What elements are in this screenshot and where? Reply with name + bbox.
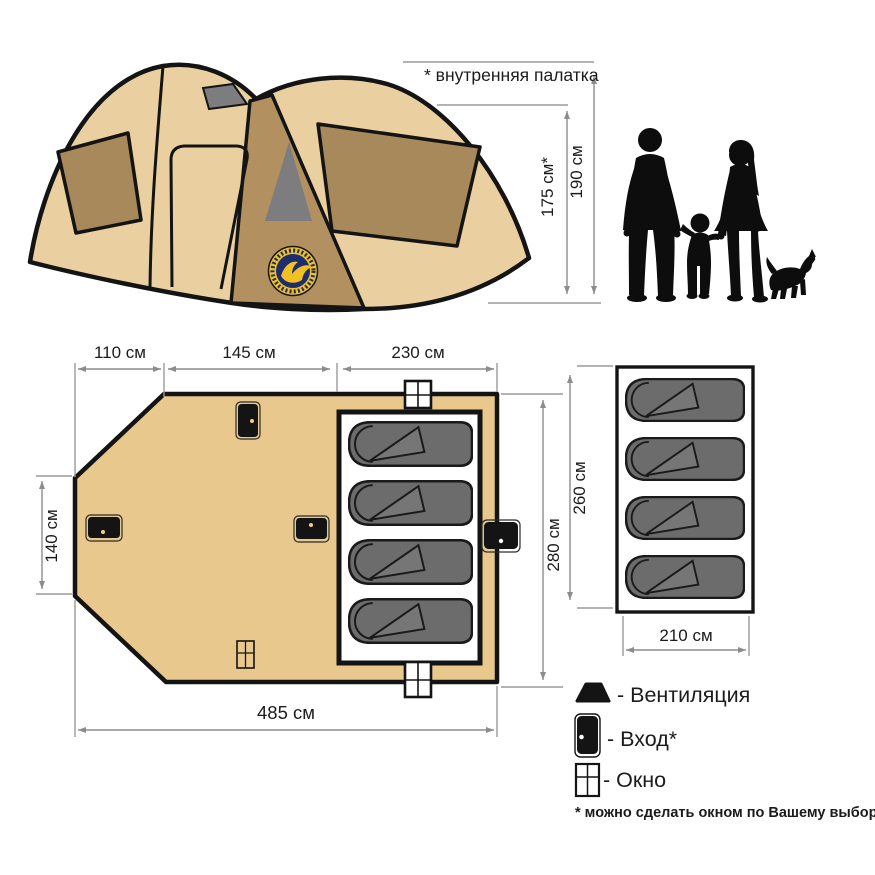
dim-label-230: 230 см [391, 343, 444, 362]
sleeping-bag [349, 481, 472, 525]
entrance-door-left-icon [86, 515, 122, 541]
dim-label-145: 145 см [222, 343, 275, 362]
legend: - Вентиляция - Вход* - Окно * можно сдел… [575, 683, 875, 821]
woman-silhouette [714, 140, 768, 302]
child-silhouette [680, 214, 719, 300]
legend-footnote: * можно сделать окном по Вашему выбору [575, 805, 875, 821]
door-icon [577, 716, 598, 754]
door-icon-knob [579, 735, 584, 740]
window-top-icon [405, 381, 431, 408]
sleeping-bag [349, 422, 472, 466]
legend-item-entrance: - Вход* [575, 714, 678, 757]
dim-label-140: 140 см [42, 509, 61, 562]
dim-label-tent-outer-height: 190 см [567, 145, 586, 198]
dim-label-tent-inner-height: 175 см* [538, 157, 557, 217]
window-bottom-icon [405, 662, 431, 697]
sleeping-bag [626, 379, 744, 421]
sleeping-bag [349, 599, 472, 643]
sleeping-bag [626, 438, 744, 480]
sleeping-bag [626, 556, 744, 598]
family-silhouette [623, 128, 816, 303]
legend-entrance-label: - Вход* [607, 727, 678, 751]
dim-label-110: 110 см [94, 343, 146, 362]
sleeping-bag [626, 497, 744, 539]
inner-tent-plan: 260 см 210 см [570, 366, 753, 656]
legend-item-vent: - Вентиляция [577, 683, 750, 707]
tent-spec-diagram: 175 см* 190 см * внутренняя палатка [0, 0, 875, 875]
tent-big-window [318, 124, 480, 246]
sleeping-bag [349, 540, 472, 584]
vent-icon [577, 684, 609, 701]
legend-window-label: - Окно [603, 768, 666, 792]
legend-vent-label: - Вентиляция [617, 683, 750, 707]
man-silhouette [623, 128, 681, 302]
dim-label-210: 210 см [659, 626, 712, 645]
dim-label-485: 485 см [257, 702, 315, 723]
dog-silhouette [766, 249, 816, 299]
tent-illustration [30, 65, 529, 310]
legend-item-window: - Окно [576, 764, 666, 796]
floor-plan [75, 381, 520, 697]
entrance-door-middle-icon [294, 516, 329, 542]
entrance-door-top-icon [236, 402, 260, 439]
inner-tent-note: * внутренняя палатка [424, 65, 599, 85]
brand-logo [269, 247, 318, 296]
diagram-svg: 175 см* 190 см * внутренняя палатка [0, 0, 875, 875]
dim-label-280: 280 см [544, 518, 563, 571]
dim-label-260: 260 см [570, 461, 589, 514]
entrance-door-right-icon [482, 520, 520, 552]
